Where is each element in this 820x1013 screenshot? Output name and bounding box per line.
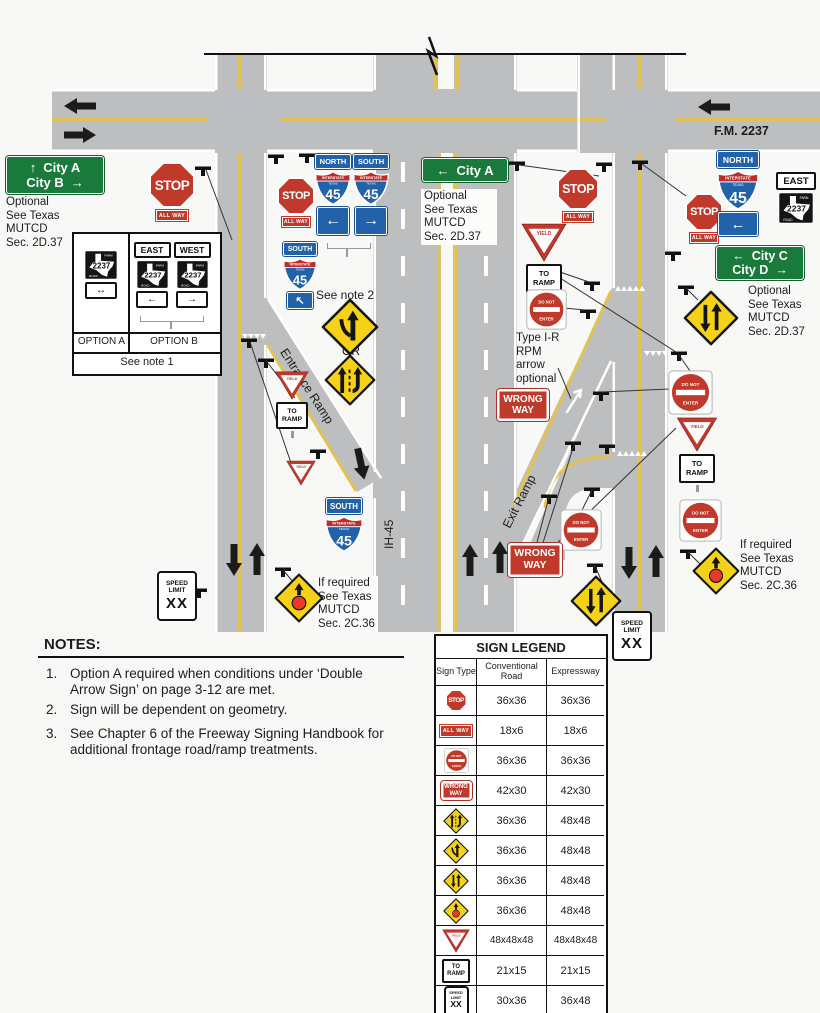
yield-sign: YIELD [275, 371, 309, 400]
double-arrow-icon: ↔ [96, 285, 106, 296]
legend-size: 36x36 [476, 895, 546, 925]
legend-size: 36x36 [476, 835, 546, 865]
svg-text:INTERSTATE: INTERSTATE [322, 176, 345, 180]
sign-post-stub [696, 485, 699, 492]
notes-heading: NOTES: [44, 636, 101, 653]
stop-all-way-assembly-left: STOP ALL WAY [149, 162, 195, 221]
svg-text:45: 45 [325, 187, 341, 202]
optional-note-left: Optional See Texas MUTCD Sec. 2D.37 [6, 196, 63, 250]
svg-text:FARM: FARM [155, 263, 164, 267]
right-arrow-icon: → [775, 264, 788, 277]
legend-size: 42x30 [546, 775, 604, 805]
merge-sign [321, 298, 379, 356]
left-arrow-icon: ← [325, 212, 341, 230]
two-way-traffic-sign-right [683, 290, 739, 346]
legend-icon-added-lane [436, 805, 476, 835]
yield-sign-ramp-merge: YIELD [286, 460, 316, 486]
wrong-way-sign-upper: WRONGWAY [497, 389, 549, 421]
svg-text:INTERSTATE: INTERSTATE [332, 522, 356, 526]
svg-text:DO NOT: DO NOT [451, 754, 461, 758]
stop-all-way-assembly-entrance: STOP ALL WAY [277, 177, 315, 227]
sign-bracket [327, 243, 371, 249]
svg-text:YIELD: YIELD [287, 377, 298, 381]
fm2237-shield: FARM2237ROAD [176, 260, 209, 289]
legend-icon-speed-limit: SPEEDLIMITXX [436, 985, 476, 1013]
i45-shield: INTERSTATETEXAS45 [283, 258, 317, 290]
legend-size: 48x48x48 [476, 925, 546, 955]
svg-text:TEXAS: TEXAS [328, 181, 338, 185]
svg-text:TEXAS: TEXAS [366, 181, 376, 185]
svg-text:2237: 2237 [184, 271, 201, 280]
added-lane-sign [324, 354, 376, 406]
svg-text:45: 45 [729, 190, 747, 207]
notes-rule [38, 656, 404, 658]
svg-text:ENTER: ENTER [574, 537, 589, 542]
option-box-rule-2 [74, 352, 220, 354]
legend-icon-do-not-enter: DO NOTENTER [436, 745, 476, 775]
note-item-1: 1.Option A required when conditions unde… [46, 666, 398, 697]
option-box-divider [128, 234, 130, 352]
legend-size: 36x48 [546, 985, 604, 1013]
svg-text:YIELD: YIELD [296, 465, 306, 469]
legend-size: 18x6 [546, 715, 604, 745]
svg-text:INTERSTATE: INTERSTATE [360, 176, 383, 180]
yield-sign: YIELD [676, 417, 718, 452]
note-item-3: 3.See Chapter 6 of the Freeway Signing H… [46, 726, 414, 757]
legend-size: 18x6 [476, 715, 546, 745]
legend-size: 48x48x48 [546, 925, 604, 955]
right-arrow-icon: → [363, 212, 379, 230]
see-note-1-label: See note 1 [74, 356, 220, 368]
legend-icon-wrong-way: WRONGWAY [436, 775, 476, 805]
left-arrow-icon: ← [731, 216, 746, 233]
left-arrow-icon: ← [436, 164, 449, 177]
signal-ahead-sign-right [692, 547, 740, 595]
legend-size: 36x36 [476, 865, 546, 895]
yield-sign: YIELD [521, 223, 567, 262]
i45-north-left-arrow-assembly: NORTH INTERSTATETEXAS45 ← [315, 154, 351, 235]
if-required-note-center: If required See Texas MUTCD Sec. 2C.36 [315, 576, 378, 632]
guide-sign-city-cd: ←City C City D→ [716, 246, 804, 280]
svg-text:DO NOT: DO NOT [682, 382, 700, 387]
svg-text:DO NOT: DO NOT [573, 520, 590, 525]
optional-note-middle: Optional See Texas MUTCD Sec. 2D.37 [421, 189, 497, 245]
legend-icon-two-way [436, 865, 476, 895]
legend-col-conventional: Conventional Road [476, 659, 546, 685]
legend-icon-stop: STOP [436, 685, 476, 715]
fm2237-east-assembly-right: EAST FARM2237ROAD [777, 172, 815, 224]
up-left-arrow-icon: ↖ [295, 294, 304, 307]
svg-text:ENTER: ENTER [693, 528, 709, 533]
fm2237-double-arrow-assembly: FARM2237ROAD ↔ [84, 250, 118, 299]
svg-text:45: 45 [293, 273, 307, 287]
legend-size: 42x30 [476, 775, 546, 805]
svg-text:DO NOT: DO NOT [538, 300, 555, 305]
legend-size: 36x36 [546, 745, 604, 775]
guide-sign-city-ab: ↑City A City B→ [6, 156, 104, 194]
svg-text:INTERSTATE: INTERSTATE [725, 176, 751, 181]
svg-text:TEXAS: TEXAS [339, 527, 349, 531]
svg-text:ENTER: ENTER [452, 764, 461, 768]
option-a-b-detail-box: FARM2237ROAD ↔ EAST FARM2237ROAD ← WEST … [72, 232, 222, 376]
legend-col-expressway: Expressway [546, 659, 604, 685]
option-b-label: OPTION B [130, 336, 218, 347]
guide-sign-city-a: ←City A [422, 158, 508, 182]
i45-south-right-arrow-assembly: SOUTH INTERSTATETEXAS45 → [353, 154, 389, 235]
svg-text:ENTER: ENTER [539, 316, 553, 321]
svg-text:TEXAS: TEXAS [296, 268, 305, 272]
svg-text:45: 45 [363, 187, 379, 202]
legend-icon-signal-ahead [436, 895, 476, 925]
svg-text:DO NOT: DO NOT [692, 510, 709, 515]
legend-size: 30x36 [476, 985, 546, 1013]
legend-col-sign-type: Sign Type [436, 659, 476, 685]
ih45-label: IH-45 [382, 520, 396, 549]
yield-to-ramp-assembly-right: YIELD TORAMP [676, 417, 718, 492]
left-arrow-icon: ← [147, 294, 157, 305]
legend-title: SIGN LEGEND [436, 636, 606, 659]
legend-icon-to-ramp: TORAMP [436, 955, 476, 985]
freeway-signing-plan: F.M. 2237 Entrance Ramp Exit Ramp IH-45 … [0, 0, 820, 1013]
svg-text:ROAD: ROAD [89, 274, 99, 278]
left-arrow-icon: ← [732, 250, 745, 263]
signal-ahead-sign-left [274, 573, 324, 623]
fm2237-west-right-arrow-assembly: WEST FARM2237ROAD → [174, 242, 210, 308]
svg-text:45: 45 [336, 534, 352, 550]
stop-all-way-assembly-middle: STOP ALL WAY [557, 168, 599, 222]
legend-icon-all-way: ALL WAY [436, 715, 476, 745]
i45-shield: INTERSTATETEXAS45 [325, 516, 363, 552]
svg-text:FARM: FARM [800, 196, 809, 200]
type-ir-rpm-note: Type I-R RPM arrow optional [516, 332, 559, 386]
i45-north-left-arrow-assembly-right: NORTH INTERSTATETEXAS45 ← [716, 151, 760, 236]
legend-size: 36x36 [476, 805, 546, 835]
svg-text:YIELD: YIELD [690, 424, 704, 429]
svg-text:ROAD: ROAD [141, 283, 149, 287]
svg-text:FARM: FARM [104, 254, 113, 258]
legend-size: 21x15 [476, 955, 546, 985]
fm2237-shield: FARM2237ROAD [778, 192, 814, 224]
svg-text:ROAD: ROAD [783, 218, 793, 222]
do-not-enter-sign-middle: DO NOTENTER [526, 289, 567, 330]
svg-text:2237: 2237 [144, 271, 161, 280]
i45-shield: INTERSTATETEXAS45 [353, 171, 389, 205]
option-box-rule-1 [74, 332, 220, 334]
legend-size: 36x36 [476, 745, 546, 775]
right-arrow-icon: → [187, 294, 197, 305]
speed-limit-sign-left: SPEED LIMIT XX [157, 571, 197, 621]
sign-bracket-post [346, 248, 348, 257]
if-required-note-right: If required See Texas MUTCD Sec. 2C.36 [740, 539, 797, 593]
do-not-enter-sign-right-lower: DO NOTENTER [679, 499, 722, 542]
speed-limit-sign-right: SPEED LIMIT XX [612, 611, 652, 661]
sign-post-stub [291, 431, 294, 438]
i45-south-assembly: SOUTH INTERSTATETEXAS45 [325, 498, 363, 552]
svg-text:YIELD: YIELD [537, 231, 552, 237]
option-a-label: OPTION A [74, 336, 129, 347]
legend-size: 48x48 [546, 895, 604, 925]
svg-text:2237: 2237 [93, 261, 111, 270]
legend-size: 21x15 [546, 955, 604, 985]
legend-size: 36x36 [546, 685, 604, 715]
legend-icon-yield: YIELD [436, 925, 476, 955]
i45-shield: INTERSTATETEXAS45 [717, 170, 759, 210]
sign-legend-table: SIGN LEGEND Sign Type Conventional Road … [434, 634, 608, 1013]
sign-bracket-post [170, 321, 172, 329]
svg-text:ROAD: ROAD [181, 283, 189, 287]
legend-size: 48x48 [546, 805, 604, 835]
svg-text:ENTER: ENTER [683, 400, 699, 405]
optional-note-right: Optional See Texas MUTCD Sec. 2D.37 [748, 285, 805, 339]
svg-text:YIELD: YIELD [451, 933, 461, 937]
right-arrow-icon: → [71, 176, 84, 189]
legend-size: 48x48 [546, 835, 604, 865]
yield-to-ramp-assembly-entrance: YIELD TORAMP [275, 371, 309, 438]
fm2237-road-label: F.M. 2237 [714, 124, 769, 138]
do-not-enter-sign-gore: DO NOTENTER [560, 509, 602, 551]
i45-south-diagonal-arrow-assembly: SOUTH INTERSTATETEXAS45 ↖ [283, 242, 317, 309]
svg-text:TEXAS: TEXAS [732, 183, 744, 187]
wrong-way-sign-lower: WRONGWAY [508, 543, 562, 577]
do-not-enter-sign-right-upper: DO NOTENTER [668, 370, 713, 415]
note-item-2: 2.Sign will be dependent on geometry. [46, 702, 398, 718]
fm2237-shield: FARM2237ROAD [136, 260, 169, 289]
svg-text:2237: 2237 [787, 204, 806, 214]
fm2237-east-left-arrow-assembly: EAST FARM2237ROAD ← [134, 242, 170, 308]
i45-shield: INTERSTATETEXAS45 [315, 171, 351, 205]
fm2237-shield: FARM2237ROAD [84, 250, 118, 280]
svg-text:FARM: FARM [195, 263, 204, 267]
legend-icon-merge [436, 835, 476, 865]
up-arrow-icon: ↑ [30, 161, 37, 174]
svg-text:INTERSTATE: INTERSTATE [290, 263, 311, 267]
legend-size: 48x48 [546, 865, 604, 895]
legend-size: 36x36 [476, 685, 546, 715]
sign-bracket [140, 316, 204, 322]
